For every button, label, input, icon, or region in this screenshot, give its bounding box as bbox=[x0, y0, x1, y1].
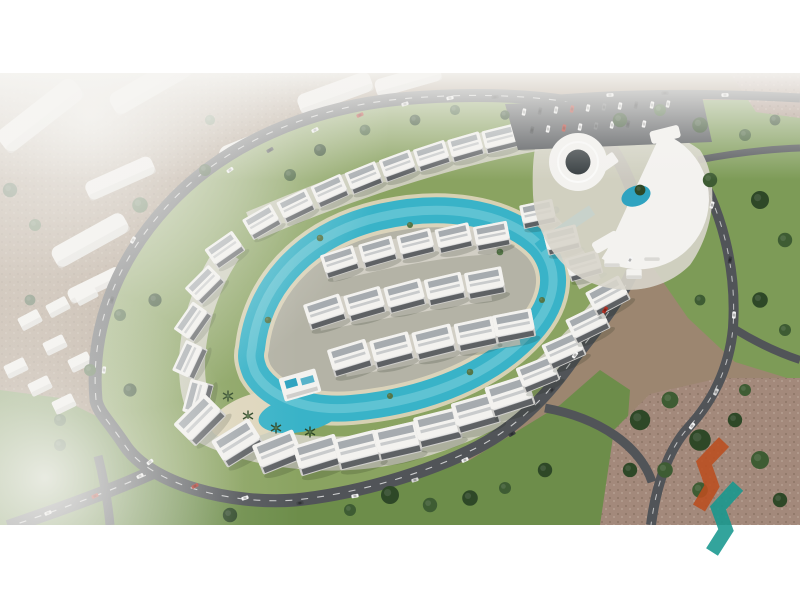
tree bbox=[635, 185, 646, 196]
tree bbox=[630, 410, 650, 430]
cabana bbox=[604, 257, 619, 267]
tree bbox=[623, 463, 637, 477]
bush bbox=[539, 297, 545, 303]
tree bbox=[423, 498, 437, 512]
tree bbox=[752, 292, 768, 308]
tree bbox=[689, 429, 711, 451]
tree bbox=[381, 486, 399, 504]
tree bbox=[751, 191, 769, 209]
tree bbox=[662, 392, 679, 409]
car bbox=[732, 311, 736, 318]
tree bbox=[538, 463, 552, 477]
tree bbox=[728, 413, 742, 427]
tree bbox=[751, 451, 769, 469]
tree bbox=[739, 384, 751, 396]
tree bbox=[499, 482, 511, 494]
cabana bbox=[626, 269, 641, 279]
tree bbox=[779, 324, 791, 336]
cabana bbox=[644, 251, 659, 261]
bush bbox=[467, 369, 474, 376]
bush bbox=[407, 222, 413, 228]
render-canvas bbox=[0, 0, 800, 600]
tree bbox=[778, 233, 792, 247]
tree bbox=[462, 490, 478, 506]
tree bbox=[657, 462, 673, 478]
tree bbox=[344, 504, 356, 516]
tree bbox=[773, 493, 787, 507]
aerial-photo bbox=[0, 0, 800, 600]
tree bbox=[695, 295, 706, 306]
aerial-render-photo bbox=[0, 0, 800, 600]
bush bbox=[387, 393, 393, 399]
